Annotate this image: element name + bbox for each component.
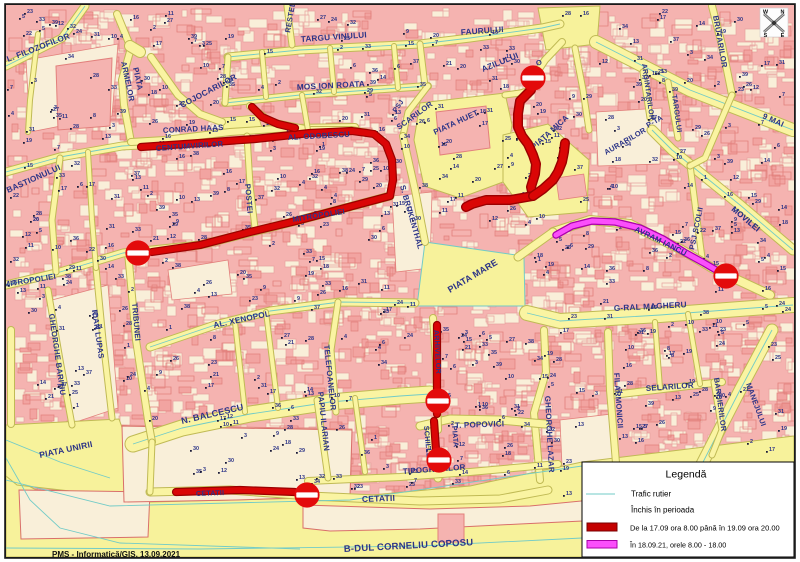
svg-text:36: 36: [609, 266, 615, 272]
svg-text:31: 31: [438, 104, 444, 110]
svg-text:38: 38: [528, 339, 534, 345]
svg-text:CETATII: CETATII: [196, 488, 225, 498]
svg-text:24: 24: [76, 29, 82, 35]
svg-text:2: 2: [131, 287, 134, 293]
svg-text:38: 38: [184, 304, 190, 310]
svg-text:4: 4: [334, 193, 337, 199]
svg-text:20: 20: [536, 102, 542, 108]
svg-text:4: 4: [546, 270, 549, 276]
svg-text:14: 14: [453, 164, 459, 170]
svg-text:18: 18: [505, 451, 511, 457]
svg-text:11: 11: [442, 208, 448, 214]
svg-text:17: 17: [660, 15, 666, 21]
svg-text:34: 34: [68, 54, 74, 60]
svg-text:34: 34: [442, 174, 448, 180]
svg-text:4: 4: [11, 111, 14, 117]
svg-text:22: 22: [518, 410, 524, 416]
svg-text:32: 32: [274, 186, 280, 192]
svg-text:13: 13: [622, 434, 628, 440]
svg-text:9: 9: [297, 296, 300, 302]
svg-text:15: 15: [230, 117, 236, 123]
svg-text:20: 20: [376, 183, 382, 189]
svg-text:3: 3: [595, 391, 598, 397]
svg-text:30: 30: [193, 446, 199, 452]
svg-text:30: 30: [737, 17, 743, 23]
svg-text:11: 11: [168, 11, 174, 17]
svg-text:14: 14: [380, 75, 386, 81]
svg-text:9: 9: [713, 406, 716, 412]
svg-text:38: 38: [703, 310, 709, 316]
svg-text:14: 14: [781, 205, 787, 211]
svg-text:2: 2: [257, 375, 260, 381]
svg-text:N: N: [781, 10, 785, 16]
svg-text:3: 3: [386, 464, 389, 470]
svg-text:6: 6: [777, 143, 780, 149]
svg-text:7: 7: [349, 396, 352, 402]
svg-text:6: 6: [291, 405, 294, 411]
svg-text:33: 33: [455, 479, 461, 485]
svg-text:39: 39: [120, 109, 126, 115]
svg-text:11: 11: [40, 284, 46, 290]
svg-text:25: 25: [72, 390, 78, 396]
svg-text:21: 21: [288, 340, 294, 346]
svg-text:1: 1: [76, 403, 79, 409]
svg-text:31: 31: [638, 330, 644, 336]
svg-text:25: 25: [505, 136, 511, 142]
svg-text:E: E: [781, 33, 785, 39]
svg-text:31: 31: [778, 409, 784, 415]
svg-text:21: 21: [213, 372, 219, 378]
svg-text:20: 20: [433, 33, 439, 39]
svg-text:36: 36: [482, 405, 488, 411]
svg-text:28: 28: [565, 11, 571, 17]
svg-text:37: 37: [673, 37, 679, 43]
svg-text:6: 6: [353, 63, 356, 69]
svg-text:19: 19: [26, 138, 32, 144]
svg-text:4: 4: [120, 34, 123, 40]
svg-text:30: 30: [576, 112, 582, 118]
svg-text:8: 8: [646, 266, 649, 272]
svg-text:10: 10: [628, 345, 634, 351]
svg-text:10: 10: [539, 214, 545, 220]
svg-text:28: 28: [702, 387, 708, 393]
svg-text:37: 37: [86, 370, 92, 376]
svg-text:33: 33: [74, 381, 80, 387]
svg-text:26: 26: [704, 131, 710, 137]
svg-text:18: 18: [503, 84, 509, 90]
svg-text:8: 8: [93, 113, 96, 119]
svg-text:11: 11: [458, 193, 464, 199]
svg-text:25: 25: [373, 166, 379, 172]
svg-text:26: 26: [173, 356, 179, 362]
svg-text:8: 8: [333, 199, 336, 205]
svg-text:10: 10: [111, 34, 117, 40]
svg-text:15: 15: [466, 337, 472, 343]
svg-text:32: 32: [652, 157, 658, 163]
svg-text:27: 27: [320, 15, 326, 21]
svg-text:33: 33: [293, 416, 299, 422]
svg-text:9: 9: [572, 94, 575, 100]
svg-text:34: 34: [381, 360, 387, 366]
svg-text:4: 4: [344, 334, 347, 340]
svg-text:15: 15: [579, 388, 585, 394]
svg-text:9: 9: [176, 219, 179, 225]
svg-text:28: 28: [627, 381, 633, 387]
svg-text:11: 11: [28, 243, 34, 249]
svg-text:5: 5: [559, 237, 562, 243]
svg-text:8: 8: [662, 78, 665, 84]
svg-text:39: 39: [727, 159, 733, 165]
svg-text:37: 37: [258, 195, 264, 201]
svg-text:6: 6: [427, 118, 430, 124]
svg-text:1: 1: [169, 325, 172, 331]
svg-text:1: 1: [322, 142, 325, 148]
svg-text:13: 13: [675, 395, 681, 401]
svg-text:35: 35: [491, 350, 497, 356]
svg-text:11: 11: [537, 463, 543, 469]
svg-text:33: 33: [702, 327, 708, 333]
svg-text:26: 26: [122, 306, 128, 312]
svg-text:37: 37: [314, 305, 320, 311]
svg-text:10: 10: [223, 422, 229, 428]
svg-text:39: 39: [648, 401, 654, 407]
svg-text:2: 2: [272, 241, 275, 247]
svg-text:13: 13: [194, 197, 200, 203]
svg-text:2: 2: [340, 45, 343, 51]
svg-text:5: 5: [765, 304, 768, 310]
svg-text:36: 36: [275, 403, 281, 409]
svg-text:9: 9: [276, 431, 279, 437]
svg-text:16: 16: [179, 154, 185, 160]
svg-text:25: 25: [206, 41, 212, 47]
svg-text:23: 23: [252, 296, 258, 302]
svg-text:4: 4: [510, 153, 513, 159]
svg-text:2: 2: [278, 80, 281, 86]
svg-text:34: 34: [404, 134, 410, 140]
svg-text:3: 3: [42, 294, 45, 300]
svg-text:21: 21: [48, 394, 54, 400]
svg-text:11: 11: [143, 185, 149, 191]
svg-text:22: 22: [13, 193, 19, 199]
svg-text:3: 3: [728, 123, 731, 129]
svg-text:7: 7: [312, 257, 315, 263]
svg-text:6: 6: [382, 340, 385, 346]
svg-text:17: 17: [270, 389, 276, 395]
svg-text:31: 31: [361, 279, 367, 285]
svg-text:5: 5: [369, 92, 372, 98]
svg-text:6: 6: [394, 116, 397, 122]
svg-text:4: 4: [324, 185, 327, 191]
svg-text:36: 36: [373, 158, 379, 164]
svg-text:19: 19: [650, 329, 656, 335]
svg-text:16: 16: [108, 243, 114, 249]
svg-text:16: 16: [165, 134, 171, 140]
svg-text:37: 37: [134, 171, 140, 177]
svg-text:19: 19: [308, 271, 314, 277]
svg-text:5: 5: [42, 26, 45, 32]
svg-text:35: 35: [420, 82, 426, 88]
svg-text:9: 9: [263, 285, 266, 291]
svg-text:31: 31: [487, 108, 493, 114]
svg-text:3: 3: [690, 50, 693, 56]
svg-text:39: 39: [672, 87, 678, 93]
svg-text:4: 4: [378, 345, 381, 351]
svg-text:24: 24: [273, 446, 279, 452]
svg-text:11: 11: [233, 420, 239, 426]
svg-text:6: 6: [382, 226, 385, 232]
svg-text:5: 5: [39, 228, 42, 234]
svg-text:14: 14: [40, 380, 46, 386]
svg-text:31: 31: [364, 112, 370, 118]
svg-text:31: 31: [29, 127, 35, 133]
svg-text:T. POPOVICI: T. POPOVICI: [455, 419, 505, 430]
svg-text:13: 13: [105, 134, 111, 140]
svg-text:Trafic rutier: Trafic rutier: [631, 490, 671, 499]
svg-text:18: 18: [615, 157, 621, 163]
svg-text:5: 5: [761, 257, 764, 263]
svg-text:Închis în perioada: Închis în perioada: [630, 506, 695, 515]
svg-text:17: 17: [764, 61, 770, 67]
svg-text:4: 4: [147, 386, 150, 392]
svg-text:39: 39: [496, 362, 502, 368]
svg-text:11: 11: [410, 302, 416, 308]
svg-text:12: 12: [753, 85, 759, 91]
svg-text:28: 28: [556, 357, 562, 363]
svg-text:20: 20: [342, 116, 348, 122]
svg-text:28: 28: [308, 336, 314, 342]
svg-text:34: 34: [622, 24, 628, 30]
svg-text:13: 13: [734, 228, 740, 234]
svg-text:17: 17: [208, 383, 214, 389]
svg-text:18: 18: [537, 253, 543, 259]
svg-text:31: 31: [94, 32, 100, 38]
svg-text:25: 25: [693, 392, 699, 398]
svg-text:31: 31: [109, 224, 115, 230]
svg-text:18: 18: [323, 264, 329, 270]
svg-text:4: 4: [767, 253, 770, 259]
svg-text:28: 28: [456, 154, 462, 160]
svg-text:19: 19: [686, 349, 692, 355]
svg-text:24: 24: [719, 341, 725, 347]
svg-text:14: 14: [108, 264, 114, 270]
svg-text:17: 17: [89, 182, 95, 188]
svg-text:20: 20: [446, 139, 452, 145]
svg-text:10: 10: [716, 319, 722, 325]
svg-text:19: 19: [540, 109, 546, 115]
svg-text:28: 28: [608, 115, 614, 121]
svg-text:În 18.09.21, orele 8.00 - 18.0: În 18.09.21, orele 8.00 - 18.00: [629, 541, 726, 550]
svg-text:19: 19: [563, 466, 569, 472]
svg-text:10: 10: [280, 174, 286, 180]
svg-text:26: 26: [152, 119, 158, 125]
svg-text:16: 16: [226, 169, 232, 175]
svg-text:34: 34: [314, 479, 320, 485]
svg-text:6: 6: [507, 470, 510, 476]
svg-text:12: 12: [492, 216, 498, 222]
svg-text:24: 24: [66, 280, 72, 286]
svg-text:26: 26: [746, 82, 752, 88]
svg-text:24: 24: [397, 300, 403, 306]
svg-text:17: 17: [769, 447, 775, 453]
svg-text:16: 16: [727, 192, 733, 198]
svg-text:28: 28: [73, 124, 79, 130]
svg-text:26: 26: [339, 425, 345, 431]
svg-text:30: 30: [31, 308, 37, 314]
svg-text:32: 32: [13, 257, 19, 263]
svg-text:10: 10: [508, 374, 514, 380]
svg-text:23: 23: [738, 87, 744, 93]
svg-text:16: 16: [342, 286, 348, 292]
svg-text:1: 1: [374, 435, 377, 441]
svg-text:33: 33: [135, 227, 141, 233]
svg-text:25: 25: [775, 355, 781, 361]
svg-text:9: 9: [406, 29, 409, 35]
svg-text:De la 17.09 ora 8.00 până în 1: De la 17.09 ora 8.00 până în 19.09 ora 2…: [630, 524, 780, 533]
svg-text:22: 22: [700, 228, 706, 234]
svg-text:30: 30: [100, 256, 106, 262]
svg-text:13: 13: [578, 422, 584, 428]
svg-text:13: 13: [384, 211, 390, 217]
svg-text:14: 14: [584, 264, 590, 270]
svg-text:39: 39: [213, 191, 219, 197]
svg-text:23: 23: [720, 327, 726, 333]
svg-text:20: 20: [687, 78, 693, 84]
svg-text:9: 9: [511, 162, 514, 168]
svg-text:16: 16: [638, 438, 644, 444]
svg-text:13: 13: [633, 39, 639, 45]
svg-text:11: 11: [76, 266, 82, 272]
svg-text:33: 33: [609, 279, 615, 285]
svg-text:6: 6: [482, 331, 485, 337]
svg-text:11: 11: [384, 285, 390, 291]
svg-text:10: 10: [383, 166, 389, 172]
svg-text:12: 12: [733, 175, 739, 181]
svg-text:28: 28: [36, 211, 42, 217]
svg-text:13: 13: [78, 366, 84, 372]
svg-text:5: 5: [22, 14, 25, 20]
svg-text:16: 16: [133, 15, 139, 21]
svg-text:11: 11: [62, 114, 68, 120]
svg-text:23: 23: [323, 222, 329, 228]
svg-text:14: 14: [764, 158, 770, 164]
svg-text:6: 6: [80, 182, 83, 188]
svg-text:33: 33: [365, 44, 371, 50]
svg-text:16: 16: [765, 286, 771, 292]
svg-text:3: 3: [112, 123, 115, 129]
svg-text:4: 4: [528, 220, 531, 226]
svg-text:24: 24: [550, 373, 556, 379]
svg-text:24: 24: [785, 307, 791, 313]
svg-text:13: 13: [20, 288, 26, 294]
svg-text:29: 29: [362, 177, 368, 183]
svg-text:18: 18: [782, 220, 788, 226]
svg-text:5: 5: [644, 424, 647, 430]
svg-text:15: 15: [267, 49, 273, 55]
svg-text:23: 23: [566, 459, 572, 465]
svg-text:28: 28: [287, 425, 293, 431]
svg-text:3: 3: [475, 360, 478, 366]
svg-text:Legendă: Legendă: [666, 469, 707, 481]
svg-text:10: 10: [162, 85, 168, 91]
svg-text:7: 7: [57, 145, 60, 151]
svg-text:29: 29: [695, 125, 701, 131]
svg-text:PIATA: PIATA: [450, 425, 461, 447]
svg-text:33: 33: [59, 173, 65, 179]
svg-text:2: 2: [750, 439, 753, 445]
svg-text:12: 12: [602, 59, 608, 65]
svg-text:17: 17: [156, 41, 162, 47]
svg-text:8: 8: [671, 353, 674, 359]
svg-text:31: 31: [492, 76, 498, 82]
svg-text:23: 23: [771, 342, 777, 348]
svg-text:31: 31: [114, 194, 120, 200]
svg-text:35: 35: [443, 327, 449, 333]
svg-text:3: 3: [617, 126, 620, 132]
svg-text:15: 15: [27, 163, 33, 169]
svg-text:33: 33: [482, 342, 488, 348]
svg-text:23: 23: [211, 360, 217, 366]
svg-text:29: 29: [586, 94, 592, 100]
svg-text:35: 35: [172, 212, 178, 218]
svg-text:9: 9: [734, 217, 737, 223]
svg-text:10: 10: [676, 155, 682, 161]
svg-text:23: 23: [571, 314, 577, 320]
svg-text:27: 27: [497, 164, 503, 170]
svg-text:37: 37: [577, 165, 583, 171]
svg-text:27: 27: [680, 149, 686, 155]
svg-text:24: 24: [779, 301, 785, 307]
svg-text:22: 22: [662, 9, 668, 15]
svg-text:19: 19: [781, 426, 787, 432]
svg-text:31: 31: [261, 383, 267, 389]
svg-text:7: 7: [222, 64, 225, 70]
svg-text:22: 22: [26, 31, 32, 37]
svg-text:39: 39: [370, 80, 376, 86]
svg-text:3: 3: [203, 467, 206, 473]
svg-text:13: 13: [661, 69, 667, 75]
svg-text:20: 20: [460, 64, 466, 70]
svg-text:16: 16: [626, 363, 632, 369]
svg-text:27: 27: [167, 18, 173, 24]
svg-text:W: W: [763, 10, 769, 16]
svg-text:4: 4: [706, 254, 709, 260]
svg-text:7: 7: [10, 85, 13, 91]
svg-text:32: 32: [350, 20, 356, 26]
svg-text:10: 10: [126, 376, 132, 382]
svg-text:38: 38: [65, 274, 71, 280]
svg-text:33: 33: [325, 281, 331, 287]
svg-text:34: 34: [707, 55, 713, 61]
svg-text:28: 28: [93, 73, 99, 79]
svg-text:39: 39: [636, 82, 642, 88]
svg-text:30: 30: [371, 235, 377, 241]
svg-text:2: 2: [671, 322, 674, 328]
svg-text:21: 21: [465, 345, 471, 351]
svg-text:27: 27: [509, 337, 515, 343]
svg-text:12: 12: [221, 468, 227, 474]
svg-text:39: 39: [742, 72, 748, 78]
svg-text:20: 20: [475, 177, 481, 183]
svg-text:10: 10: [404, 144, 410, 150]
svg-text:3: 3: [465, 330, 468, 336]
svg-text:21: 21: [446, 61, 452, 67]
svg-text:21: 21: [153, 236, 159, 242]
svg-text:32: 32: [70, 24, 76, 30]
svg-text:15: 15: [319, 256, 325, 262]
svg-text:30: 30: [228, 458, 234, 464]
svg-text:4: 4: [261, 85, 264, 91]
svg-text:24: 24: [331, 17, 337, 23]
